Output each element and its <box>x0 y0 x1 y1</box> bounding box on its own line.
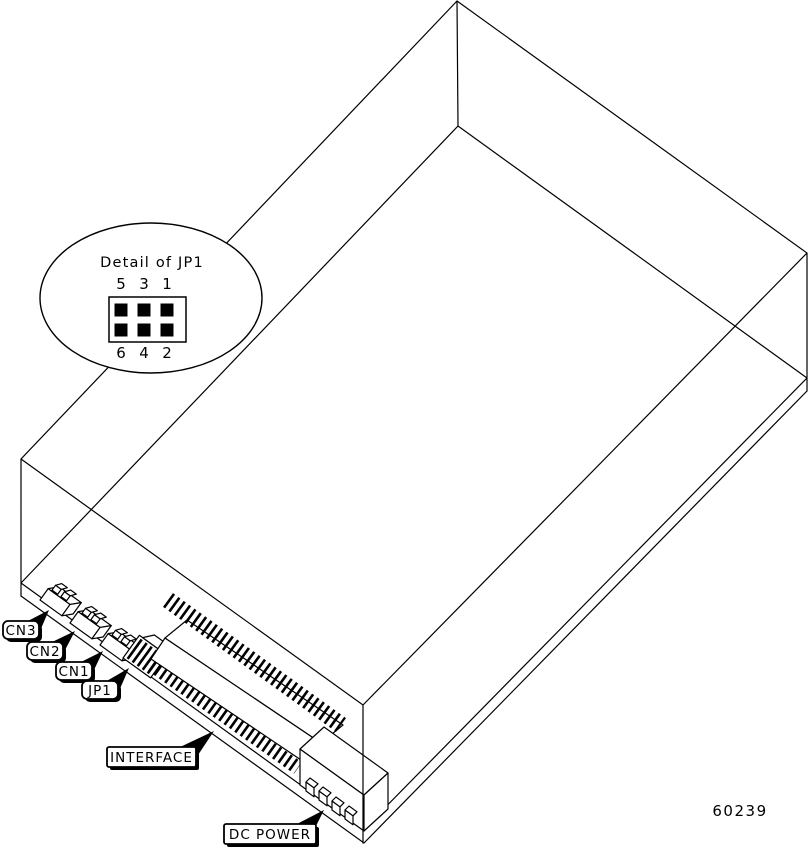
callout-jp1-label: JP1 <box>87 683 112 699</box>
jp1-pin-1 <box>161 304 174 317</box>
jp1-pin-2 <box>161 324 174 337</box>
jp1-pin-5 <box>115 304 128 317</box>
jp1-detail-bubble: Detail of JP1 5 3 1 6 4 2 <box>40 223 262 373</box>
drive-rear-isometric-figure: Detail of JP1 5 3 1 6 4 2 CN3 CN2 C <box>0 0 809 849</box>
callout-interface: INTERFACE <box>107 731 214 770</box>
figure-number: 60239 <box>712 802 767 820</box>
chassis-edges <box>21 1 807 830</box>
pin-number-1: 1 <box>162 275 172 293</box>
jp1-pin-6 <box>115 324 128 337</box>
detail-bubble-title: Detail of JP1 <box>100 255 204 271</box>
callout-dc-power: DC POWER <box>224 810 324 847</box>
pin-number-5: 5 <box>116 275 126 293</box>
jp1-pin-3 <box>138 304 151 317</box>
pin-number-4: 4 <box>139 344 149 362</box>
callout-cn1-label: CN1 <box>58 664 89 680</box>
callout-cn3: CN3 <box>3 610 49 642</box>
callout-interface-label: INTERFACE <box>110 750 193 766</box>
callout-cn3-label: CN3 <box>5 623 36 639</box>
callout-dc-power-label: DC POWER <box>229 827 311 843</box>
chassis-wireframe <box>21 1 807 843</box>
dc-power-connector <box>300 727 388 831</box>
callout-cn2-label: CN2 <box>29 644 60 660</box>
pin-number-6: 6 <box>116 344 126 362</box>
diagram-canvas: Detail of JP1 5 3 1 6 4 2 CN3 CN2 C <box>0 0 809 849</box>
pin-number-3: 3 <box>139 275 149 293</box>
pcb-base-band <box>21 391 807 843</box>
pin-number-2: 2 <box>162 344 172 362</box>
jp1-pin-4 <box>138 324 151 337</box>
